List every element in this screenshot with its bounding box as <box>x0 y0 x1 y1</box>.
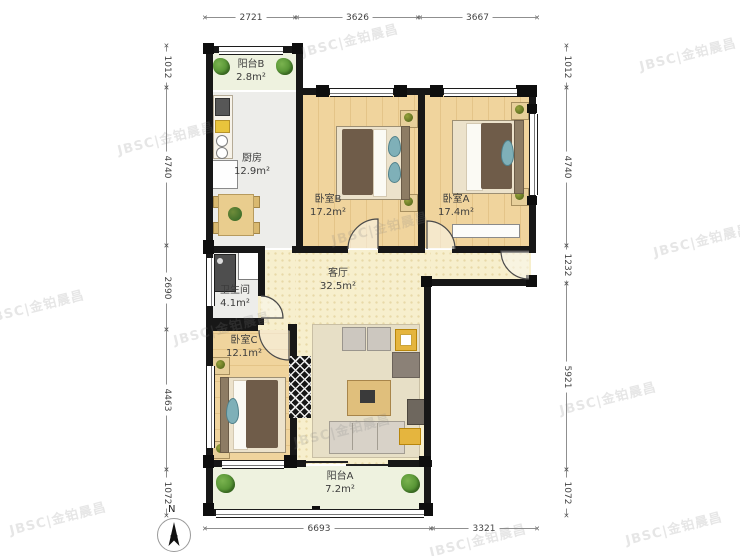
room-area: 7.2m² <box>312 483 368 496</box>
wall-corner <box>292 43 303 54</box>
wall-corner <box>203 455 214 468</box>
pillow <box>501 140 514 166</box>
dim-value: 1072 <box>562 478 572 509</box>
plant-icon <box>216 474 235 493</box>
wall-corner <box>203 240 214 254</box>
room-area: 2.8m² <box>221 71 281 84</box>
room-name: 厨房 <box>226 152 278 165</box>
wall-corner <box>421 276 432 287</box>
pillow <box>388 162 401 183</box>
dim-top-3: 3667 <box>419 17 536 18</box>
watermark: JBSC|金铂晨昌 <box>299 18 400 60</box>
label-bedroom-c: 卧室C 12.1m² <box>216 334 272 360</box>
bed-b-sheet <box>373 129 387 197</box>
label-bathroom: 卫生间 4.1m² <box>208 284 262 310</box>
wall-corner <box>394 85 407 97</box>
wall-corner <box>527 104 537 113</box>
room-name: 卫生间 <box>208 284 262 297</box>
bed-b-blanket <box>342 129 373 195</box>
dim-value: 2721 <box>236 13 267 23</box>
room-name: 客厅 <box>308 267 368 280</box>
dim-left-3: 2690 <box>166 246 167 330</box>
wall-corner <box>316 85 329 97</box>
bed-b-headboard <box>401 126 410 200</box>
room-area: 12.1m² <box>216 347 272 360</box>
room-area: 4.1m² <box>208 297 262 310</box>
label-living: 客厅 32.5m² <box>308 267 368 293</box>
window-bedroom-c-bottom <box>222 460 284 469</box>
shower-head-icon <box>217 258 223 264</box>
ottoman <box>399 428 421 445</box>
dim-value: 1012 <box>562 52 572 83</box>
label-kitchen: 厨房 12.9m² <box>226 152 278 178</box>
window-bedroom-a-right <box>529 114 538 195</box>
room-name: 卧室B <box>300 193 356 206</box>
compass-n-label: N <box>168 504 175 515</box>
washer <box>238 252 260 280</box>
sofa-seam <box>352 423 353 450</box>
table-plant-icon <box>228 207 242 221</box>
room-area: 17.4m² <box>428 206 484 219</box>
watermark: JBSC|金铂晨昌 <box>7 496 108 538</box>
dim-left-1: 1012 <box>166 46 167 88</box>
window-bedroom-c <box>206 366 215 448</box>
wall-corner <box>527 196 537 205</box>
dim-value: 4740 <box>562 152 572 183</box>
window-balcony-a <box>216 509 424 518</box>
dim-value: 4463 <box>162 385 172 416</box>
pillow <box>388 136 401 157</box>
floorplan-image: 阳台B 2.8m² 厨房 12.9m² 卧室B 17.2m² 卧室A 17.4m… <box>0 0 740 556</box>
tv-stand <box>452 224 520 238</box>
wall-bedroom-divider <box>418 88 425 246</box>
dim-value: 1012 <box>162 52 172 83</box>
stove-icon <box>215 98 230 116</box>
wall-mid-3 <box>378 246 425 253</box>
wall-step <box>424 279 536 286</box>
wall-corner <box>203 43 214 54</box>
wall-corner <box>419 456 431 467</box>
side-table-tray <box>400 334 412 346</box>
room-name: 阳台B <box>221 58 281 71</box>
watermark: JBSC|金铂晨昌 <box>637 32 738 74</box>
label-balcony-a: 阳台A 7.2m² <box>312 470 368 496</box>
dim-value: 1232 <box>562 250 572 281</box>
nightstand-plant-icon <box>216 360 225 369</box>
window-bedroom-a <box>444 88 517 97</box>
dim-right-2: 4740 <box>566 88 567 246</box>
dim-left-4: 4463 <box>166 330 167 470</box>
room-area: 32.5m² <box>308 280 368 293</box>
dim-left-5: 1072 <box>166 470 167 516</box>
wall-bedroom-c-top <box>206 324 258 331</box>
dim-value: 5921 <box>562 362 572 393</box>
dim-right-3: 1232 <box>566 246 567 284</box>
watermark: JBSC|金铂晨昌 <box>623 506 724 548</box>
wall-mid-4 <box>452 246 536 253</box>
dim-left-2: 4740 <box>166 88 167 246</box>
window-balcony-b <box>219 46 283 55</box>
dim-right-1: 1012 <box>566 46 567 88</box>
dim-bottom-2: 3321 <box>432 528 536 529</box>
wall-east <box>424 279 431 516</box>
kitchen-cabinet <box>215 120 230 133</box>
wall-mid-1 <box>206 246 262 253</box>
wall-corner <box>430 85 443 97</box>
dim-value: 2690 <box>162 273 172 304</box>
room-area: 17.2m² <box>300 206 356 219</box>
wall-corner <box>526 275 537 287</box>
north-arrow-icon <box>158 519 190 551</box>
room-name: 阳台A <box>312 470 368 483</box>
wall-corner <box>284 455 297 468</box>
window-bedroom-b <box>330 88 393 97</box>
sofa <box>329 421 405 454</box>
watermark: JBSC|金铂晨昌 <box>0 284 86 326</box>
dim-bottom-1: 6693 <box>206 528 432 529</box>
label-balcony-b: 阳台B 2.8m² <box>221 58 281 84</box>
dim-top-2: 3626 <box>296 17 419 18</box>
room-name: 卧室A <box>428 193 484 206</box>
wall-corner <box>203 503 214 516</box>
sofa-cushion <box>367 327 391 351</box>
watermark: JBSC|金铂晨昌 <box>557 376 658 418</box>
wall-mid-2 <box>292 246 348 253</box>
duct-shaft <box>289 356 311 418</box>
dim-value: 6693 <box>304 524 335 534</box>
dim-value: 3667 <box>462 13 493 23</box>
coffee-table-item <box>360 390 375 403</box>
dim-top-1: 2721 <box>206 17 296 18</box>
dim-value: 3321 <box>469 524 500 534</box>
sink-icon <box>216 135 228 147</box>
armchair <box>392 352 420 378</box>
nightstand-plant-icon <box>515 105 524 114</box>
room-name: 卧室C <box>216 334 272 347</box>
pillow <box>226 398 239 424</box>
bed-c-blanket <box>246 380 278 448</box>
sofa-seam <box>377 423 378 450</box>
compass-icon <box>157 518 191 552</box>
room-area: 12.9m² <box>226 165 278 178</box>
dim-value: 4740 <box>162 152 172 183</box>
watermark: JBSC|金铂晨昌 <box>651 218 740 260</box>
label-bedroom-b: 卧室B 17.2m² <box>300 193 356 219</box>
plant-icon <box>401 474 420 493</box>
dim-right-4: 5921 <box>566 284 567 470</box>
dim-value: 3626 <box>342 13 373 23</box>
wall-corner <box>526 85 537 97</box>
nightstand-plant-icon <box>404 113 413 122</box>
label-bedroom-a: 卧室A 17.4m² <box>428 193 484 219</box>
sofa-cushion <box>342 327 366 351</box>
bed-a-headboard <box>514 120 524 194</box>
dim-right-5: 1072 <box>566 470 567 516</box>
